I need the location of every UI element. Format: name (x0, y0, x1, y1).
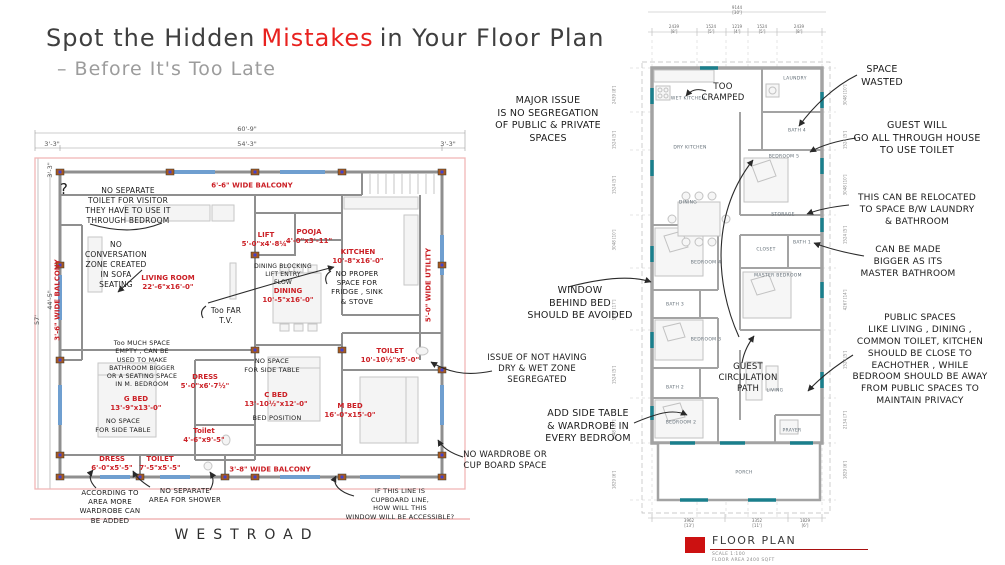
road-label: WESTROAD (175, 527, 320, 543)
issue-dry-wet-zone: ISSUE OF NOT HAVINGDRY & WET ZONESEGREGA… (487, 353, 587, 387)
legend-title: FLOOR PLAN (712, 534, 796, 547)
title-prefix: Spot the Hidden (46, 24, 255, 52)
left-floor-plan-drawing (30, 125, 470, 550)
page-title: Spot the HiddenMistakesin Your Floor Pla… (46, 24, 604, 52)
major-issue-segregation: MAJOR ISSUEIS NO SEGREGATIONOF PUBLIC & … (495, 95, 601, 145)
title-highlight: Mistakes (255, 24, 379, 52)
title-suffix: in Your Floor Plan (380, 24, 605, 52)
legend-floor-area: FLOOR AREA 2400 SQFT (712, 558, 775, 563)
legend-scale: SCALE 1:100 (712, 552, 745, 557)
legend-color-swatch (685, 537, 705, 553)
legend-underline (710, 549, 868, 550)
no-wardrobe-cupboard: NO WARDROBE ORCUP BOARD SPACE (463, 450, 547, 472)
right-floor-plan-drawing (600, 0, 1005, 565)
page-subtitle: – Before It's Too Late (57, 58, 276, 80)
